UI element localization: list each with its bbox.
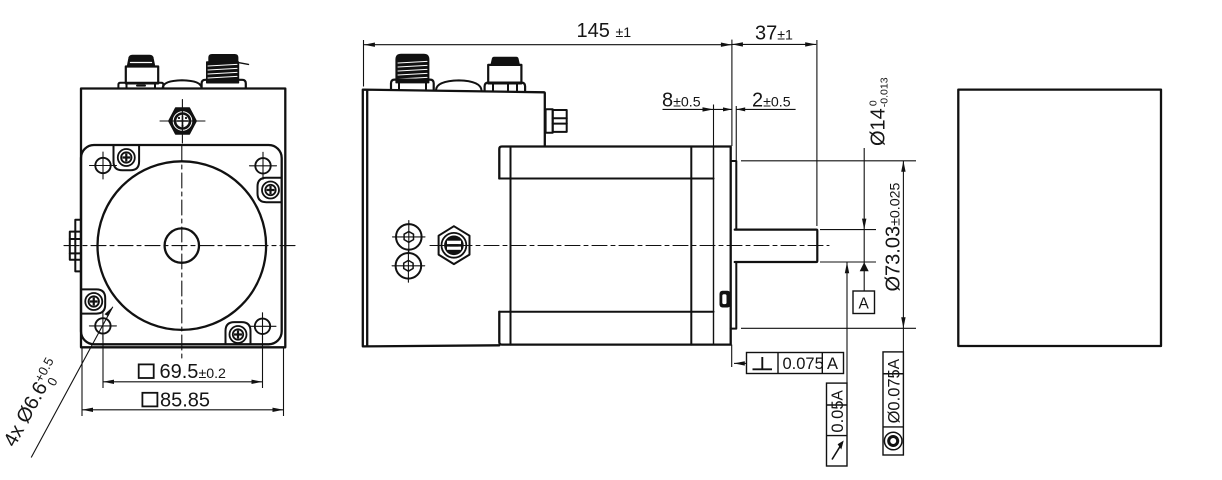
svg-text:A: A (827, 355, 838, 373)
svg-text:A: A (830, 390, 847, 401)
svg-text:Ø0.075: Ø0.075 (886, 369, 904, 423)
svg-text:A: A (859, 296, 870, 313)
svg-text:0.075: 0.075 (783, 355, 824, 373)
svg-text:A: A (886, 358, 903, 369)
svg-text:85.85: 85.85 (160, 390, 210, 412)
svg-text:0.05: 0.05 (829, 400, 847, 432)
